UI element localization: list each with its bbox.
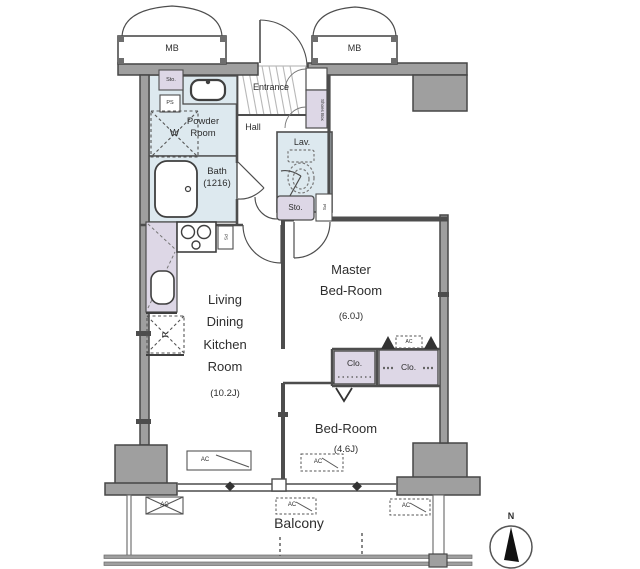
ac-balcony-left-box [276,498,316,514]
front-door [260,20,307,67]
pillar-bottom-left-base [105,483,177,495]
storage-top-box [159,70,183,90]
pipe-space-kitchen-box [218,226,233,249]
closets [334,336,438,401]
closet-door-v-mark [336,388,352,401]
powder-room-door [238,162,264,199]
wall-top-right [308,63,467,75]
ldk-door [243,225,281,263]
bathtub [155,161,197,217]
floor-plan-drawing [0,0,640,569]
hall-storage-door [255,197,277,219]
ac-ldk-box [187,451,251,470]
closet-fold-mark-left [381,336,395,349]
kitchen [146,222,233,355]
kitchen-sink [151,271,174,304]
meter-box-left-door-arcs [122,6,222,36]
closet-fold-mark-right [424,336,438,349]
pipe-space-hall-box [316,194,332,221]
wall-right [440,215,448,443]
ac-bedroom-box [301,454,343,471]
meter-box-right-door-arcs [313,7,396,36]
compass [490,526,532,568]
floor-plan: MB MB Entrance Shoes Box Powder Room W B… [0,0,640,569]
pillar-bottom-right-base [397,477,480,495]
ac-boxes [146,451,430,515]
meter-box-right-outline [312,36,397,64]
storage-hall-box [277,196,314,220]
pillar-bottom-left [115,445,167,484]
pillar-bottom-right [413,443,467,478]
pillar-top-right [413,75,467,111]
refrigerator-box [147,316,184,353]
meter-boxes [118,6,397,64]
ac-balcony-right-box [390,499,430,515]
meter-box-left-outline [118,36,226,64]
pipe-space-top-box [160,95,180,112]
closet-small-box [334,351,375,384]
wall-top-left [118,63,258,75]
ac-master-box [396,336,422,348]
balcony-windows [177,479,397,491]
master-bedroom-door [294,222,330,258]
washbasin [183,76,237,104]
